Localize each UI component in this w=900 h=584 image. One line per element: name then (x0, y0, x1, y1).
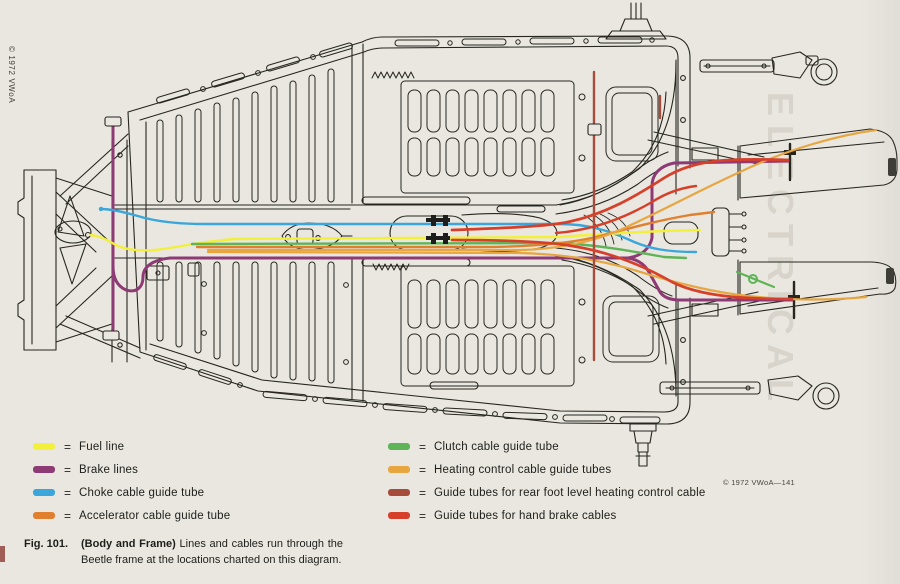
equals-sign: = (64, 509, 71, 523)
manual-page: { "page": { "copyright_side": "© 1972 VW… (0, 0, 900, 584)
fuel-swatch (33, 443, 55, 450)
rear-heating-swatch (388, 489, 410, 496)
brake-fitting-front-bottom (103, 331, 119, 340)
floor-ribs-lower (157, 262, 334, 383)
legend-row-clutch: = Clutch cable guide tube (388, 435, 705, 458)
handbrake-clamps (426, 215, 450, 244)
rear-floor-grid-lower (401, 266, 659, 386)
legend-label: Heating control cable guide tubes (434, 464, 611, 476)
legend-label: Clutch cable guide tube (434, 441, 559, 453)
pan-seams (352, 44, 363, 401)
figure-caption-text: (Body and Frame) Lines and cables run th… (81, 537, 343, 568)
legend-row-accelerator: = Accelerator cable guide tube (33, 504, 230, 527)
rear-frame-fork (556, 76, 897, 385)
legend-row-rear-heating: = Guide tubes for rear foot level heatin… (388, 481, 705, 504)
legend-row-handbrake: = Guide tubes for hand brake cables (388, 504, 705, 527)
legend-row-brake: = Brake lines (33, 458, 230, 481)
heating-swatch (388, 466, 410, 473)
equals-sign: = (419, 463, 426, 477)
clutch-swatch (388, 443, 410, 450)
body-mount-stud-top (606, 3, 666, 39)
center-tunnel (115, 72, 628, 389)
legend-label: Fuel line (79, 441, 124, 453)
legend-row-heating: = Heating control cable guide tubes (388, 458, 705, 481)
legend-label: Choke cable guide tube (79, 487, 204, 499)
cables (90, 72, 876, 360)
copyright-left: © 1972 VWoA (7, 46, 16, 103)
heating-cable-fitting (588, 124, 601, 135)
equals-sign: = (64, 463, 71, 477)
brake-fitting-front-top (105, 117, 121, 126)
equals-sign: = (419, 486, 426, 500)
equals-sign: = (419, 440, 426, 454)
legend-row-choke: = Choke cable guide tube (33, 481, 230, 504)
rear-bracket-lower (660, 376, 839, 409)
watermark-text: ELECTRICAL (760, 92, 801, 410)
scan-artifact (0, 546, 5, 562)
figure-number: Fig. 101. (24, 537, 81, 568)
legend-right-column: = Clutch cable guide tube = Heating cont… (388, 435, 705, 527)
legend-label: Guide tubes for hand brake cables (434, 510, 616, 522)
handbrake-swatch (388, 512, 410, 519)
legend-label: Brake lines (79, 464, 138, 476)
legend-left-column: = Fuel line = Brake lines = Choke cable … (33, 435, 230, 527)
equals-sign: = (64, 440, 71, 454)
equals-sign: = (64, 486, 71, 500)
floor-ribs-upper (157, 69, 334, 202)
legend-label: Guide tubes for rear foot level heating … (434, 487, 705, 499)
legend-row-fuel: = Fuel line (33, 435, 230, 458)
choke-swatch (33, 489, 55, 496)
figure-caption-title: (Body and Frame) (81, 538, 176, 550)
rear-bracket-upper (700, 52, 837, 85)
legend-label: Accelerator cable guide tube (79, 510, 230, 522)
copyright-right: © 1972 VWoA—141 (723, 478, 795, 487)
rear-floor-grid-upper (401, 81, 658, 193)
figure-caption: Fig. 101. (Body and Frame) Lines and cab… (24, 537, 343, 568)
equals-sign: = (419, 509, 426, 523)
brake-swatch (33, 466, 55, 473)
accelerator-swatch (33, 512, 55, 519)
